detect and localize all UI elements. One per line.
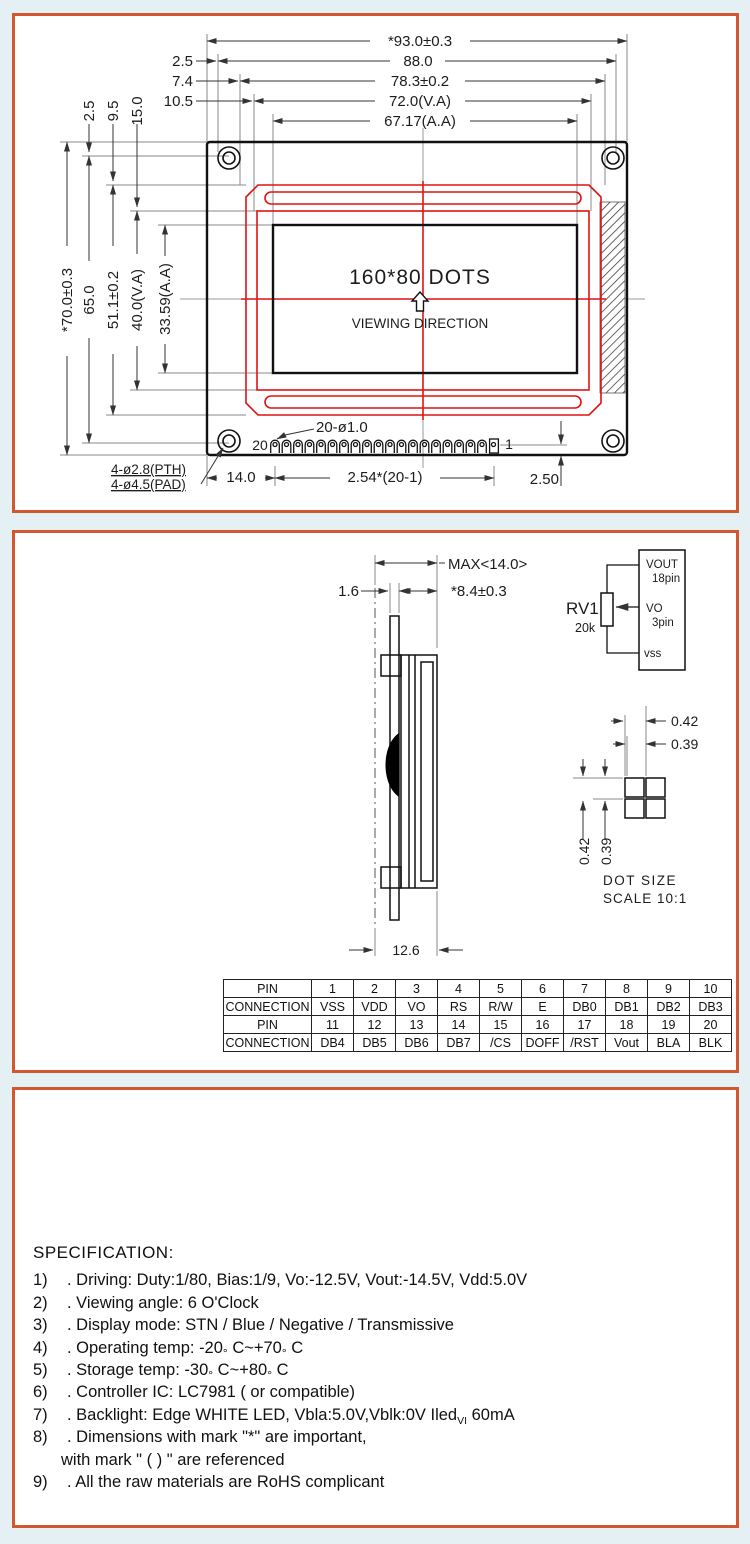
side-dimension-lines — [349, 563, 463, 950]
spec-text: . Storage temp: -30° C~+80° C — [67, 1359, 289, 1381]
hole-note-pad: 4-ø4.5(PAD) — [111, 477, 186, 492]
spec-num: 8) — [33, 1426, 67, 1448]
rv1-value: 20k — [575, 621, 596, 635]
specification-panel: SPECIFICATION: 1). Driving: Duty:1/80, B… — [12, 1087, 739, 1528]
offset-v-2_5: 2.5 — [81, 101, 98, 122]
cell: DB4 — [312, 1034, 354, 1052]
spec-num: 7) — [33, 1404, 67, 1426]
table-row: PIN 1 2 3 4 5 6 7 8 9 10 — [224, 980, 732, 998]
dot-dim-v2: 0.39 — [598, 838, 614, 865]
spec-item-7: 7). Backlight: Edge WHITE LED, Vbla:5.0V… — [33, 1404, 723, 1426]
spec-title: SPECIFICATION: — [33, 1242, 723, 1264]
cell: DB0 — [564, 998, 606, 1016]
cell: 5 — [480, 980, 522, 998]
heatseal-hatch — [600, 202, 625, 393]
cell: 11 — [312, 1016, 354, 1034]
cell: RS — [438, 998, 480, 1016]
datasheet-page: { "panel1": { "dims_top": ["*93.0±0.3", … — [0, 0, 750, 1544]
side-extension-lines — [375, 555, 437, 956]
cell: VSS — [312, 998, 354, 1016]
spec-item-6: 6). Controller IC: LC7981 ( or compatibl… — [33, 1381, 723, 1403]
spec-num: 6) — [33, 1381, 67, 1403]
cell: DOFF — [522, 1034, 564, 1052]
dim-edge: 2.50 — [530, 471, 559, 488]
cell: DB3 — [690, 998, 732, 1016]
cell: DB5 — [354, 1034, 396, 1052]
hole-note-pth: 4-ø2.8(PTH) — [111, 462, 186, 477]
table-row: CONNECTION DB4 DB5 DB6 DB7 /CS DOFF /RST… — [224, 1034, 732, 1052]
cell: Vout — [606, 1034, 648, 1052]
cell: 15 — [480, 1016, 522, 1034]
cell: 16 — [522, 1016, 564, 1034]
pin-note-leader — [277, 429, 314, 439]
spec-item-4: 4). Operating temp: -20° C~+70° C — [33, 1337, 723, 1359]
cell: 2 — [354, 980, 396, 998]
spec-num: 1) — [33, 1269, 67, 1291]
cell: 4 — [438, 980, 480, 998]
table-row: CONNECTION VSS VDD VO RS R/W E DB0 DB1 D… — [224, 998, 732, 1016]
display-label: 160*80 DOTS — [349, 266, 491, 289]
spec-text: with mark " ( ) " are referenced — [61, 1449, 285, 1471]
spec-text: . Driving: Duty:1/80, Bias:1/9, Vo:-12.5… — [67, 1269, 527, 1291]
cell: 13 — [396, 1016, 438, 1034]
pin-table: PIN 1 2 3 4 5 6 7 8 9 10 CONNECTION VSS … — [223, 979, 732, 1052]
dim-72: 72.0(V.A) — [389, 93, 451, 110]
dim-max: MAX<14.0> — [448, 556, 527, 573]
cell: 17 — [564, 1016, 606, 1034]
pin-note: 20-ø1.0 — [316, 419, 368, 436]
table-row: PIN 11 12 13 14 15 16 17 18 19 20 — [224, 1016, 732, 1034]
offset-2_5: 2.5 — [172, 53, 193, 70]
cell: BLA — [648, 1034, 690, 1052]
spec-text: . Controller IC: LC7981 ( or compatible) — [67, 1381, 355, 1403]
rv1-pin-vout: VOUT — [646, 559, 678, 571]
subscript: VI — [457, 1415, 467, 1427]
spec-num — [33, 1449, 61, 1471]
cell: 19 — [648, 1016, 690, 1034]
spec-item-8: 8). Dimensions with mark "*" are importa… — [33, 1426, 723, 1448]
spec-text: . Operating temp: -20° C~+70° C — [67, 1337, 303, 1359]
cell: BLK — [690, 1034, 732, 1052]
cell: 8 — [606, 980, 648, 998]
specification-block: SPECIFICATION: 1). Driving: Duty:1/80, B… — [33, 1242, 723, 1493]
dim-margin: 14.0 — [226, 469, 255, 486]
rv1-circuit: RV1 20k VOUT 18pin VO 3pin vss — [566, 550, 685, 670]
rv1-pin-vo2: 3pin — [652, 617, 674, 629]
dim-51: 51.1±0.2 — [105, 271, 122, 329]
spec-item-2: 2). Viewing angle: 6 O'Clock — [33, 1292, 723, 1314]
cell: 18 — [606, 1016, 648, 1034]
dot-size-detail: 0.42 0.39 0.42 0.39 DOT SIZE SCALE 10:1 — [573, 706, 698, 906]
spec-text: . Viewing angle: 6 O'Clock — [67, 1292, 259, 1314]
dim-pcb: 1.6 — [338, 583, 359, 600]
cell: 3 — [396, 980, 438, 998]
cell: 12 — [354, 1016, 396, 1034]
cell: 14 — [438, 1016, 480, 1034]
cell: VO — [396, 998, 438, 1016]
bezel-clip — [386, 733, 400, 797]
pin-1-label: 1 — [505, 436, 513, 452]
cell: PIN — [224, 1016, 312, 1034]
front-view-drawing: *93.0±0.3 88.0 78.3±0.2 72.0(V.A) 67.17(… — [15, 16, 736, 510]
dot-dim-v1: 0.42 — [576, 838, 592, 865]
spec-num: 2) — [33, 1292, 67, 1314]
cell: 10 — [690, 980, 732, 998]
spec-item-8-cont: with mark " ( ) " are referenced — [33, 1449, 723, 1471]
offset-v-9_5: 9.5 — [105, 101, 122, 122]
cell: /RST — [564, 1034, 606, 1052]
spec-text: . Display mode: STN / Blue / Negative / … — [67, 1314, 454, 1336]
pin-20-label: 20 — [252, 437, 268, 453]
spec-item-5: 5). Storage temp: -30° C~+80° C — [33, 1359, 723, 1381]
dot-dim-h1: 0.42 — [671, 713, 698, 729]
cell: PIN — [224, 980, 312, 998]
cell: 1 — [312, 980, 354, 998]
side-view-panel: MAX<14.0> 1.6 *8.4±0.3 12.6 RV1 20k VOUT… — [12, 530, 739, 1073]
spec-num: 5) — [33, 1359, 67, 1381]
cell: 6 — [522, 980, 564, 998]
cell: DB6 — [396, 1034, 438, 1052]
cell: DB1 — [606, 998, 648, 1016]
viewing-direction-label: VIEWING DIRECTION — [352, 316, 489, 331]
front-view-panel: *93.0±0.3 88.0 78.3±0.2 72.0(V.A) 67.17(… — [12, 13, 739, 513]
spec-num: 4) — [33, 1337, 67, 1359]
spec-num: 3) — [33, 1314, 67, 1336]
cell: /CS — [480, 1034, 522, 1052]
dim-40: 40.0(V.A) — [129, 269, 146, 331]
dim-33: 33.59(A.A) — [157, 263, 174, 335]
dim-93: *93.0±0.3 — [388, 33, 452, 50]
dim-78: 78.3±0.2 — [391, 73, 449, 90]
centerlines — [180, 128, 645, 468]
offset-v-15: 15.0 — [129, 96, 146, 125]
offset-7_4: 7.4 — [172, 73, 193, 90]
rv1-pin-vout2: 18pin — [652, 573, 680, 585]
rv1-pin-vss: vss — [644, 648, 662, 660]
dim-70: *70.0±0.3 — [59, 268, 76, 332]
cell: DB7 — [438, 1034, 480, 1052]
cell: 9 — [648, 980, 690, 998]
spec-text: . Dimensions with mark "*" are important… — [67, 1426, 367, 1448]
spec-text: . Backlight: Edge WHITE LED, Vbla:5.0V,V… — [67, 1404, 515, 1426]
viewing-direction-arrow — [412, 292, 428, 311]
spec-item-3: 3). Display mode: STN / Blue / Negative … — [33, 1314, 723, 1336]
rv1-label: RV1 — [566, 599, 599, 618]
cell: E — [522, 998, 564, 1016]
dim-height: *8.4±0.3 — [451, 583, 507, 600]
cell: 7 — [564, 980, 606, 998]
dim-width: 12.6 — [392, 942, 419, 958]
dot-size-caption1: DOT SIZE — [603, 873, 677, 888]
dim-88: 88.0 — [403, 53, 432, 70]
cell: CONNECTION — [224, 1034, 312, 1052]
spec-text: . All the raw materials are RoHS complic… — [67, 1471, 384, 1493]
dim-67: 67.17(A.A) — [384, 113, 456, 130]
cell: CONNECTION — [224, 998, 312, 1016]
rv1-pin-vo: VO — [646, 603, 663, 615]
dot-size-caption2: SCALE 10:1 — [603, 891, 687, 906]
spec-num: 9) — [33, 1471, 67, 1493]
dot-dim-h2: 0.39 — [671, 736, 698, 752]
cell: R/W — [480, 998, 522, 1016]
spec-item-9: 9). All the raw materials are RoHS compl… — [33, 1471, 723, 1493]
cell: 20 — [690, 1016, 732, 1034]
offset-10_5: 10.5 — [164, 93, 193, 110]
dim-pitch: 2.54*(20-1) — [347, 469, 422, 486]
dim-65: 65.0 — [81, 285, 98, 314]
cell: VDD — [354, 998, 396, 1016]
connector-pins — [271, 439, 499, 453]
cell: DB2 — [648, 998, 690, 1016]
spec-item-1: 1). Driving: Duty:1/80, Bias:1/9, Vo:-12… — [33, 1269, 723, 1291]
side-view — [375, 588, 437, 953]
